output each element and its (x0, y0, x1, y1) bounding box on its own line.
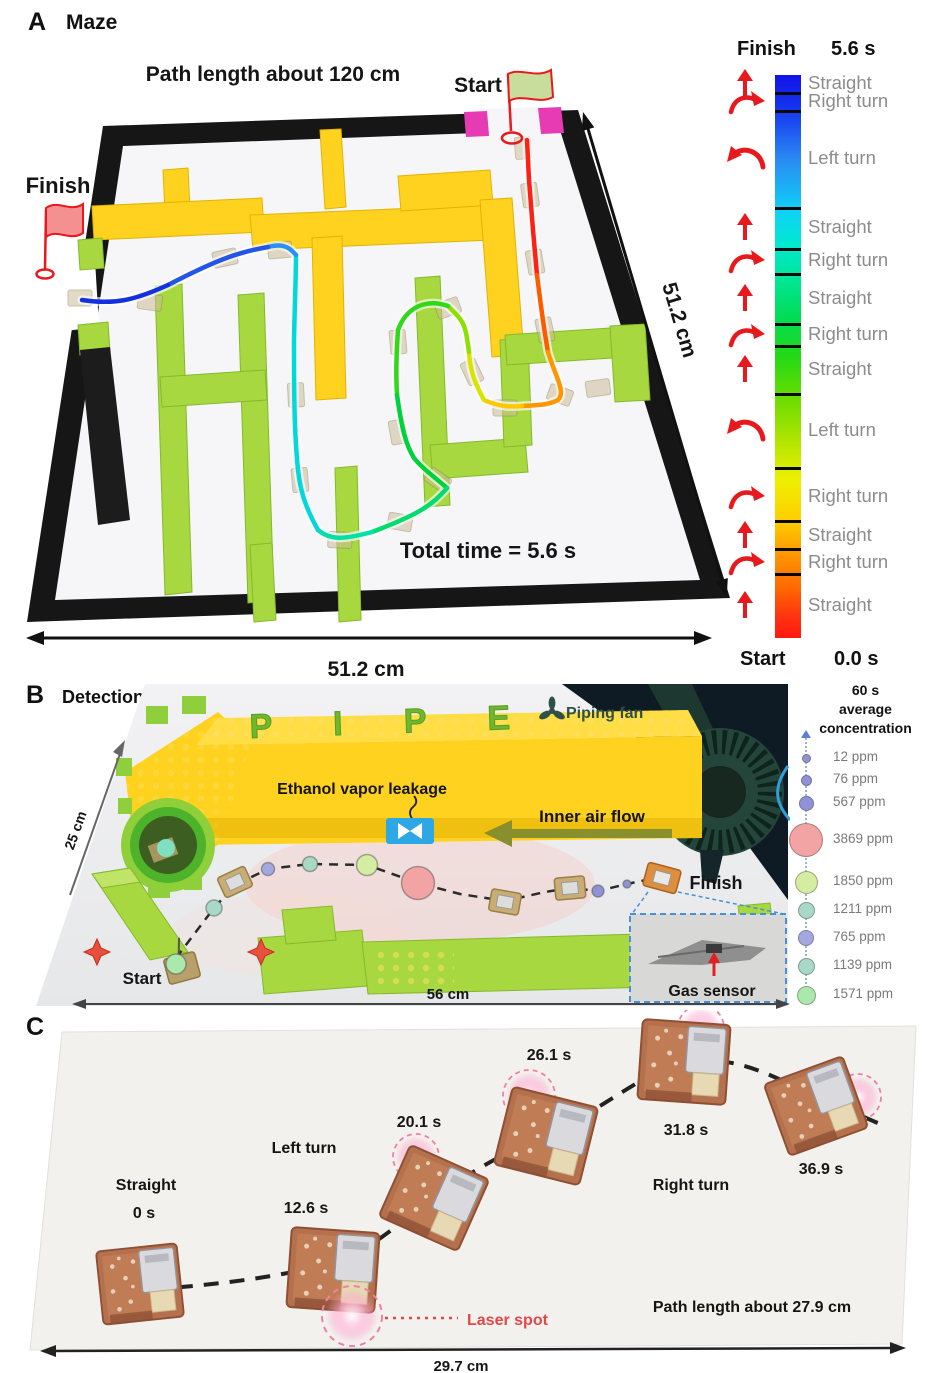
straight-arrow-icon (725, 590, 769, 620)
dim-right-label-a: 51.2 cm (657, 280, 701, 360)
dim-left-label-b: 25 cm (61, 809, 90, 852)
bubble (166, 954, 186, 974)
airflow-label: Inner air flow (539, 807, 646, 826)
legend-row-label: Right turn (808, 321, 941, 347)
bubble (402, 867, 435, 900)
legend-start-label: Start (740, 648, 786, 671)
straight-arrow-icon (725, 283, 769, 313)
maneuver-colorbar-legend: Finish 5.6 s Straight Right turn Left tu… (713, 30, 941, 692)
dim-bottom-label-a: 51.2 cm (327, 658, 404, 681)
right-turn-arrow-icon (725, 319, 769, 349)
colorbar-tick (775, 393, 801, 396)
start-block-right (538, 107, 564, 134)
speckled-wall-section (370, 946, 454, 988)
start-gap (486, 107, 543, 135)
start-label-b: Start (123, 969, 162, 988)
bubble-swatch (789, 823, 823, 857)
dimension-arrow-bottom (26, 631, 712, 645)
straight-arrow-icon (725, 354, 769, 384)
legend-row-label: Right turn (808, 483, 941, 509)
colorbar-tick (775, 467, 801, 470)
bubble-swatch (799, 796, 814, 811)
time-26.1s: 26.1 s (527, 1047, 572, 1064)
finish-label-b: Finish (690, 873, 743, 893)
leak-valve (386, 818, 434, 844)
legend-row-label: Right turn (808, 549, 941, 575)
legend-row-label: Straight (808, 214, 941, 240)
concentration-legend: 60 s average concentration 12 ppm 76 ppm… (790, 680, 941, 1025)
robot-0s (96, 1243, 184, 1325)
legend-row: Right turn (713, 547, 941, 577)
bubble-swatch (802, 754, 811, 763)
legend-row-label: Right turn (808, 247, 941, 273)
legend-finish-label: Finish (737, 38, 796, 61)
legend-row: Straight (713, 354, 941, 384)
laser-sequence-photo: Straight 0 s Left turn 12.6 s 20.1 s 26.… (0, 1010, 941, 1373)
finish-block (78, 238, 104, 270)
total-time-label: Total time = 5.6 s (400, 538, 576, 563)
legend-b-title-2: average (790, 701, 941, 717)
start-label-a: Start (454, 74, 502, 97)
straight-arrow-icon (725, 520, 769, 550)
maneuver-right-label: Right turn (653, 1177, 729, 1194)
legend-axis-arrow-icon (801, 730, 811, 738)
legend-row: Left turn (713, 415, 941, 445)
figure-page: A Maze (0, 0, 941, 1373)
gas-sensor-label: Gas sensor (668, 983, 755, 1000)
left-turn-arrow-icon (725, 415, 769, 445)
time-31.8s: 31.8 s (664, 1122, 709, 1139)
legend-row-label: Left turn (808, 145, 941, 171)
time-20.1s: 20.1 s (397, 1114, 442, 1131)
bubble-swatch (797, 986, 816, 1005)
legend-row: Straight (713, 212, 941, 242)
time-12.6s: 12.6 s (284, 1200, 329, 1217)
legend-row-label: Straight (808, 592, 941, 618)
bubble-value: 567 ppm (833, 794, 886, 809)
sensor-dot (157, 839, 175, 857)
legend-b-title-3: concentration (790, 720, 941, 736)
colorbar-tick (775, 207, 801, 210)
legend-row: Straight (713, 590, 941, 620)
robot-31.8s (637, 1019, 730, 1105)
legend-b-title-1: 60 s (790, 682, 941, 698)
maneuver-left-label: Left turn (272, 1140, 337, 1157)
laser-spot-label: Laser spot (467, 1312, 549, 1329)
bubble-value: 1571 ppm (833, 986, 893, 1001)
legend-row: Right turn (713, 86, 941, 116)
right-turn-arrow-icon (725, 547, 769, 577)
right-turn-arrow-icon (725, 481, 769, 511)
right-turn-arrow-icon (725, 86, 769, 116)
bubble-value: 1211 ppm (833, 901, 892, 916)
time-36.9s: 36.9 s (799, 1161, 844, 1178)
legend-row: Straight (713, 283, 941, 313)
bubble (303, 857, 318, 872)
bubble (623, 880, 631, 888)
bubble (592, 885, 604, 897)
bubble-value: 3869 ppm (833, 831, 893, 846)
bubble-swatch (798, 958, 815, 975)
bubble-swatch (798, 902, 815, 919)
legend-row-label: Straight (808, 522, 941, 548)
bubble (206, 900, 222, 916)
legend-row-label: Right turn (808, 88, 941, 114)
path-length-label-c: Path length about 27.9 cm (653, 1299, 851, 1316)
bubble-swatch (798, 930, 814, 946)
bubble-value: 12 ppm (833, 749, 878, 764)
legend-row: Right turn (713, 245, 941, 275)
bubble (357, 855, 378, 876)
finish-label-a: Finish (26, 173, 91, 198)
legend-row-label: Left turn (808, 417, 941, 443)
dim-bottom-label-c: 29.7 cm (433, 1358, 488, 1373)
legend-row: Left turn (713, 143, 941, 173)
straight-arrow-icon (725, 212, 769, 242)
dim-bottom-label-b: 56 cm (427, 986, 470, 1003)
legend-finish-time: 5.6 s (831, 38, 875, 61)
right-turn-arrow-icon (725, 245, 769, 275)
legend-row-label: Straight (808, 285, 941, 311)
start-block-left (464, 111, 489, 137)
detection-photo: P I P E (28, 680, 790, 1014)
time-0s: 0 s (133, 1205, 155, 1222)
piping-fan-label: Piping fan (566, 705, 643, 722)
bubble-value: 1139 ppm (833, 957, 892, 972)
bubble-swatch (801, 775, 812, 786)
path-length-label-a: Path length about 120 cm (146, 63, 400, 86)
maze-photo: Path length about 120 cm Start Finish To… (0, 0, 745, 692)
legend-row: Right turn (713, 481, 941, 511)
maneuver-straight-label: Straight (116, 1177, 177, 1194)
bubble-value: 765 ppm (833, 929, 886, 944)
bubble (262, 863, 275, 876)
bubble-value: 76 ppm (833, 771, 878, 786)
bubble-value: 1850 ppm (833, 873, 893, 888)
legend-row: Straight (713, 520, 941, 550)
ethanol-leak-label: Ethanol vapor leakage (277, 781, 447, 798)
left-turn-arrow-icon (725, 143, 769, 173)
bubble-swatch (795, 871, 818, 894)
legend-start-time: 0.0 s (834, 648, 878, 671)
legend-row: Right turn (713, 319, 941, 349)
legend-row-label: Straight (808, 356, 941, 382)
